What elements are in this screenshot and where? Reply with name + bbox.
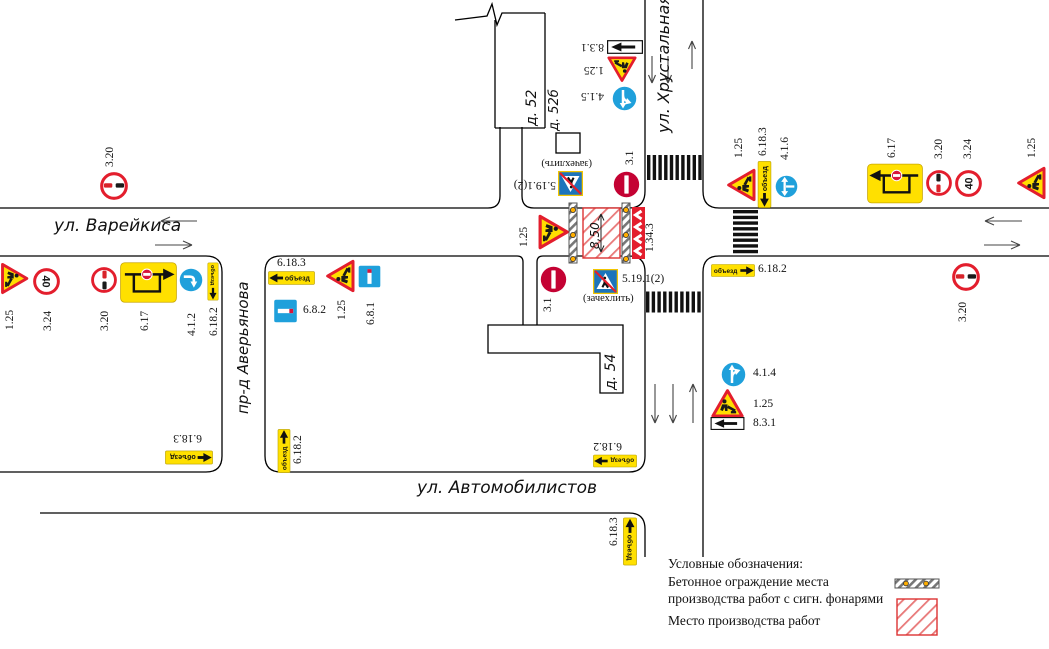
arrow-south-down-2 <box>670 384 677 423</box>
legend-barrier-swatch <box>895 579 939 588</box>
svg-text:объезд: объезд <box>280 447 288 470</box>
sign-51912-north-label: 5.19.1(2) <box>514 179 556 191</box>
sign-125-w-label: 1.25 <box>4 310 16 330</box>
sign-125-north-label: 1.25 <box>584 64 604 76</box>
svg-text:объезд: объезд <box>611 457 634 465</box>
sign-320-se-label: 3.20 <box>957 302 969 322</box>
sign-416-e <box>775 175 798 198</box>
sign-51912-south-label: 5.19.1(2) <box>622 273 664 285</box>
sign-6182-w: объезд <box>207 262 220 300</box>
sign-831-s <box>710 417 745 430</box>
sign-51912-north <box>558 171 583 196</box>
sign-6182-sbr-label: 6.18.2 <box>593 440 622 452</box>
svg-text:объезд: объезд <box>761 165 769 191</box>
sign-320-w <box>91 267 117 293</box>
sign-125-e1 <box>726 168 756 202</box>
sign-415-north-label: 4.1.5 <box>581 90 604 102</box>
sign-31-north <box>613 171 640 198</box>
svg-text:объезд: объезд <box>284 275 310 283</box>
sign-831-north <box>607 40 643 54</box>
svg-text:40: 40 <box>963 177 975 189</box>
sign-412-w-label: 4.1.2 <box>186 313 198 336</box>
sign-320-nw-label: 3.20 <box>104 147 116 167</box>
arrow-east-left <box>985 217 1022 225</box>
sign-125-e1-label: 1.25 <box>733 138 745 158</box>
sign-1343-chevron-label: 1.34.3 <box>644 223 656 252</box>
sign-617-w <box>120 262 177 303</box>
sign-125-e2-label: 1.25 <box>1026 138 1038 158</box>
sign-31-south <box>540 266 567 293</box>
building-d52-breakline <box>455 4 545 25</box>
sign-125-w <box>1 262 30 294</box>
sign-6182-e: объезд <box>711 263 755 278</box>
sign-125-center-label: 1.25 <box>518 227 530 247</box>
arrow-north-up <box>689 41 696 69</box>
dimension-label: 8,50 <box>588 222 602 249</box>
street-label-khrustalnaya: ул. Хрустальная <box>654 0 673 133</box>
sign-6183-mid: объезд <box>268 270 315 286</box>
sign-324-w-label: 3.24 <box>42 311 54 331</box>
sign-6182-e-label: 6.18.2 <box>758 263 787 275</box>
sign-682-mid <box>273 299 298 323</box>
svg-text:40: 40 <box>39 275 51 287</box>
arrow-south-down-1 <box>652 384 659 423</box>
sign-414-s <box>721 362 746 387</box>
sign-682-mid-label: 6.8.2 <box>303 304 326 316</box>
sign-831-s-label: 8.3.1 <box>753 417 776 429</box>
sign-320-e <box>926 170 952 196</box>
sign-31-south-label: 3.1 <box>542 298 554 312</box>
street-label-averyanova: пр-д Аверьянова <box>234 281 252 414</box>
sign-125-e2 <box>1016 166 1046 200</box>
traffic-scheme-canvas: ул. Варейкисаул. Хрустальнаяпр-д Аверьян… <box>0 0 1049 649</box>
sign-617-w-label: 6.17 <box>139 311 151 331</box>
sign-324-e: 40 <box>955 170 982 197</box>
sign-6183-mid-label: 6.18.3 <box>277 257 306 269</box>
building-label-d52b: д. 52б <box>547 89 562 131</box>
sign-324-w: 40 <box>33 268 60 295</box>
arrow-south-up <box>690 384 697 423</box>
sign-6182-sbr: объезд <box>593 454 637 468</box>
legend-workzone-swatch <box>897 599 937 635</box>
sign-6183-sb: объезд <box>623 517 638 565</box>
sign-1343-chevron <box>632 207 645 259</box>
arrow-east-right <box>984 241 1020 249</box>
sign-320-se <box>952 263 980 291</box>
sign-6182-sw-label: 6.18.2 <box>292 435 304 464</box>
sign-125-mid <box>325 259 355 293</box>
sign-320-w-label: 3.20 <box>99 311 111 331</box>
sign-415-north <box>612 86 637 111</box>
sign-324-e-label: 3.24 <box>962 139 974 159</box>
sign-31-north-label: 3.1 <box>624 151 636 165</box>
sign-51912-south <box>593 269 618 294</box>
buildings <box>455 4 623 393</box>
arrow-west-right <box>155 241 192 249</box>
sign-125-center <box>538 214 570 250</box>
sign-6183-swb-label: 6.18.3 <box>173 432 202 444</box>
svg-text:объезд: объезд <box>209 265 216 286</box>
building-d52b <box>556 133 580 153</box>
sign-6183-e-label: 6.18.3 <box>757 127 769 156</box>
legend-item-barrier-line2: производства работ с сигн. фонарями <box>668 591 883 607</box>
street-label-avtomobilistov: ул. Автомобилистов <box>417 478 597 498</box>
legend-item-barrier-line1: Бетонное ограждение места <box>668 574 829 590</box>
legend-swatches <box>895 579 939 635</box>
sign-6183-sb-label: 6.18.3 <box>608 517 620 546</box>
svg-text:объезд: объезд <box>625 534 633 560</box>
sign-125-mid-label: 1.25 <box>336 300 348 320</box>
sign-681-mid <box>358 265 381 288</box>
sign-125-s-label: 1.25 <box>753 398 773 410</box>
sign-617-e <box>867 163 923 204</box>
sign-681-mid-label: 6.8.1 <box>365 302 377 325</box>
sign-412-w <box>179 268 203 292</box>
sign-320-e-label: 3.20 <box>933 139 945 159</box>
building-label-d52: д. 52 <box>524 90 540 126</box>
sign-416-e-label: 4.1.6 <box>779 137 791 160</box>
building-label-d54: д. 54 <box>603 354 619 390</box>
svg-text:объезд: объезд <box>714 266 737 274</box>
legend-title: Условные обозначения: <box>668 556 803 572</box>
legend-item-workzone: Место производства работ <box>668 613 820 629</box>
sign-414-s-label: 4.1.4 <box>753 367 776 379</box>
sign-320-nw <box>100 172 128 200</box>
sign-51912-south-note: (зачехлить) <box>583 293 634 304</box>
sign-6182-w-label: 6.18.2 <box>208 307 220 336</box>
street-label-vareykisa: ул. Варейкиса <box>54 216 181 236</box>
sign-617-e-label: 6.17 <box>886 138 898 158</box>
sign-6183-e: объезд <box>757 161 772 208</box>
sign-51912-north-note: (зачехлить) <box>541 158 592 169</box>
sign-6183-swb: объезд <box>165 450 213 465</box>
sign-125-s <box>710 388 745 418</box>
sign-125-north <box>607 56 637 83</box>
sign-831-north-label: 8.3.1 <box>581 41 604 53</box>
svg-text:объезд: объезд <box>170 452 196 460</box>
sign-6182-sw: объезд <box>277 429 291 473</box>
